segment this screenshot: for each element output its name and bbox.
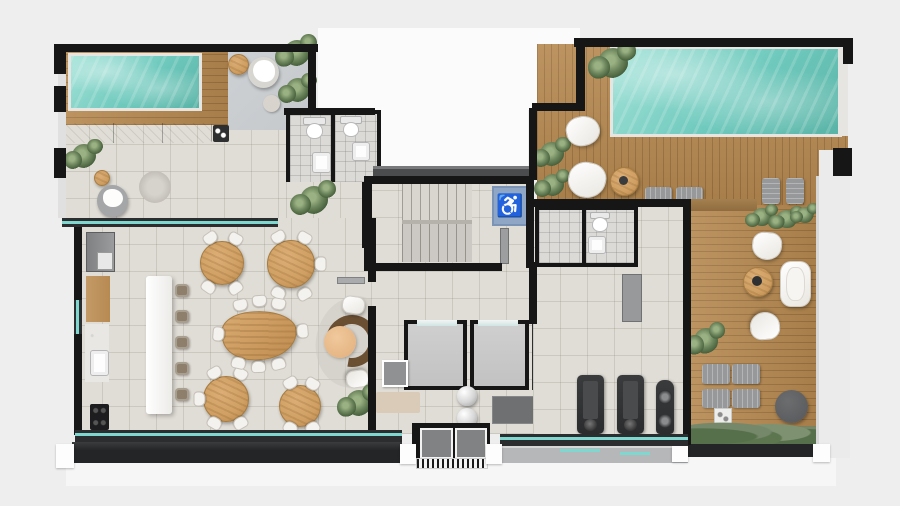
wall-column bbox=[54, 44, 66, 74]
vestibule-unit-1 bbox=[420, 428, 453, 459]
grill-front bbox=[97, 252, 113, 270]
deck-planter-edge bbox=[688, 444, 818, 457]
corner-pillar bbox=[813, 444, 830, 462]
treadmill-2-console bbox=[624, 419, 637, 431]
party-glass-wall bbox=[75, 430, 402, 442]
sauna-1-glass-door bbox=[417, 320, 457, 326]
deck-armchair-2 bbox=[749, 311, 781, 341]
left-parapet bbox=[58, 52, 66, 218]
gym-cabinet bbox=[622, 274, 642, 322]
chair bbox=[251, 361, 266, 374]
vestibule-unit-2 bbox=[455, 428, 487, 459]
sauna-1 bbox=[404, 320, 467, 390]
treadmill-1-belt bbox=[583, 381, 598, 419]
side-table-black bbox=[213, 125, 229, 142]
wall-column bbox=[54, 148, 66, 178]
elevator-door bbox=[500, 228, 509, 264]
bike-wheel-1 bbox=[658, 390, 672, 404]
wall bbox=[58, 44, 318, 52]
wall bbox=[526, 176, 534, 268]
stair-flight-lower bbox=[402, 224, 472, 262]
wheelchair-icon: ♿ bbox=[496, 195, 523, 217]
sun-lounger-a2 bbox=[732, 364, 760, 384]
kitchen-sink bbox=[90, 350, 109, 376]
cooktop bbox=[90, 404, 109, 430]
gray-lounge-cushion bbox=[103, 189, 123, 207]
wall-column bbox=[54, 86, 66, 112]
terrace-bench-row bbox=[64, 123, 212, 143]
sun-lounger-b2 bbox=[732, 389, 760, 408]
wall bbox=[366, 263, 502, 271]
sink-1 bbox=[312, 152, 331, 173]
chair bbox=[194, 392, 206, 407]
wall bbox=[574, 38, 850, 47]
toilet-1-bowl bbox=[306, 123, 323, 139]
outer-walkway bbox=[819, 150, 850, 458]
gym-glass-wall bbox=[500, 434, 688, 446]
dining-table-1 bbox=[200, 241, 244, 285]
sun-lounger-v2 bbox=[786, 178, 804, 204]
stair-flight-upper bbox=[402, 184, 472, 220]
wall-column bbox=[843, 38, 853, 64]
wall bbox=[532, 103, 585, 111]
left-pool bbox=[68, 53, 202, 111]
corner-pillar bbox=[486, 444, 502, 464]
small-pouf bbox=[263, 95, 280, 112]
corner-pillar bbox=[400, 444, 416, 464]
sink-2 bbox=[352, 142, 370, 161]
deck-plant-3 bbox=[542, 174, 564, 196]
terrace-plant-2 bbox=[286, 78, 310, 102]
wall bbox=[366, 176, 532, 184]
corner-pillar bbox=[672, 446, 688, 462]
sun-lounger-a1 bbox=[702, 364, 730, 384]
sauna-2-glass-door bbox=[478, 320, 518, 326]
wall bbox=[529, 262, 537, 324]
deck-plant-row-3 bbox=[796, 207, 814, 223]
wall-column bbox=[833, 148, 852, 176]
lounge-armchair-1 bbox=[341, 294, 366, 315]
bar-stool-4 bbox=[175, 362, 189, 375]
chair bbox=[315, 257, 327, 272]
balcony-ledge bbox=[72, 442, 402, 463]
toilet-2-bowl bbox=[343, 122, 359, 137]
wall bbox=[368, 306, 376, 434]
deck-coffee-table-center bbox=[752, 276, 762, 286]
round-rug bbox=[139, 171, 171, 203]
nook-plant bbox=[300, 186, 328, 214]
right-pool bbox=[610, 46, 842, 137]
terrace-glass-wall bbox=[62, 218, 278, 227]
bar-stool-2 bbox=[175, 310, 189, 323]
wall bbox=[529, 199, 691, 207]
bike-wheel-2 bbox=[658, 414, 672, 428]
sink-3 bbox=[588, 236, 606, 254]
party-door-leaf bbox=[337, 277, 365, 284]
walkway-glass-accent bbox=[560, 449, 600, 452]
lounge-table bbox=[324, 326, 356, 358]
wall bbox=[529, 108, 537, 180]
bar-stool-3 bbox=[175, 336, 189, 349]
beige-rug bbox=[376, 392, 420, 413]
wall bbox=[308, 44, 316, 114]
bar-stool-1 bbox=[175, 284, 189, 297]
deck-plant-2 bbox=[540, 142, 564, 166]
dining-table-2 bbox=[267, 240, 315, 288]
treadmill-2-belt bbox=[623, 381, 638, 419]
deck-side-table-tray bbox=[619, 176, 628, 185]
wood-pouf bbox=[228, 54, 249, 75]
wall bbox=[576, 38, 585, 110]
deck-plant-4 bbox=[694, 328, 718, 354]
hall-table bbox=[382, 360, 408, 387]
kitchen-window bbox=[74, 300, 82, 334]
void-lower bbox=[375, 105, 528, 167]
wall bbox=[284, 108, 375, 115]
sun-lounger-v1 bbox=[762, 178, 780, 204]
sauna-2 bbox=[470, 320, 529, 390]
sun-lounger-b1 bbox=[702, 389, 730, 408]
chair bbox=[296, 323, 309, 339]
treadmill-1-console bbox=[584, 419, 597, 431]
deck-loveseat-cushion bbox=[786, 267, 805, 301]
vent-grille bbox=[416, 458, 488, 469]
accessible-elevator-sign: ♿ bbox=[492, 186, 528, 226]
toilet-3-bowl bbox=[592, 217, 608, 232]
wall bbox=[683, 205, 691, 445]
wall bbox=[364, 176, 372, 271]
daybed-cushion bbox=[253, 60, 275, 82]
kitchen-wood-cabinet bbox=[86, 276, 110, 322]
walkway-glass-accent bbox=[620, 452, 650, 455]
corner-pillar bbox=[56, 444, 74, 468]
round-ottoman bbox=[775, 390, 808, 423]
island-counter bbox=[146, 276, 172, 414]
deck-plant-1 bbox=[598, 48, 628, 78]
wood-pouf-2 bbox=[94, 170, 110, 186]
bar-stool-5 bbox=[175, 388, 189, 401]
floor-plan: ♿ bbox=[0, 0, 900, 506]
decor-sphere-1 bbox=[457, 386, 477, 406]
terrace-plant-3 bbox=[72, 144, 96, 168]
